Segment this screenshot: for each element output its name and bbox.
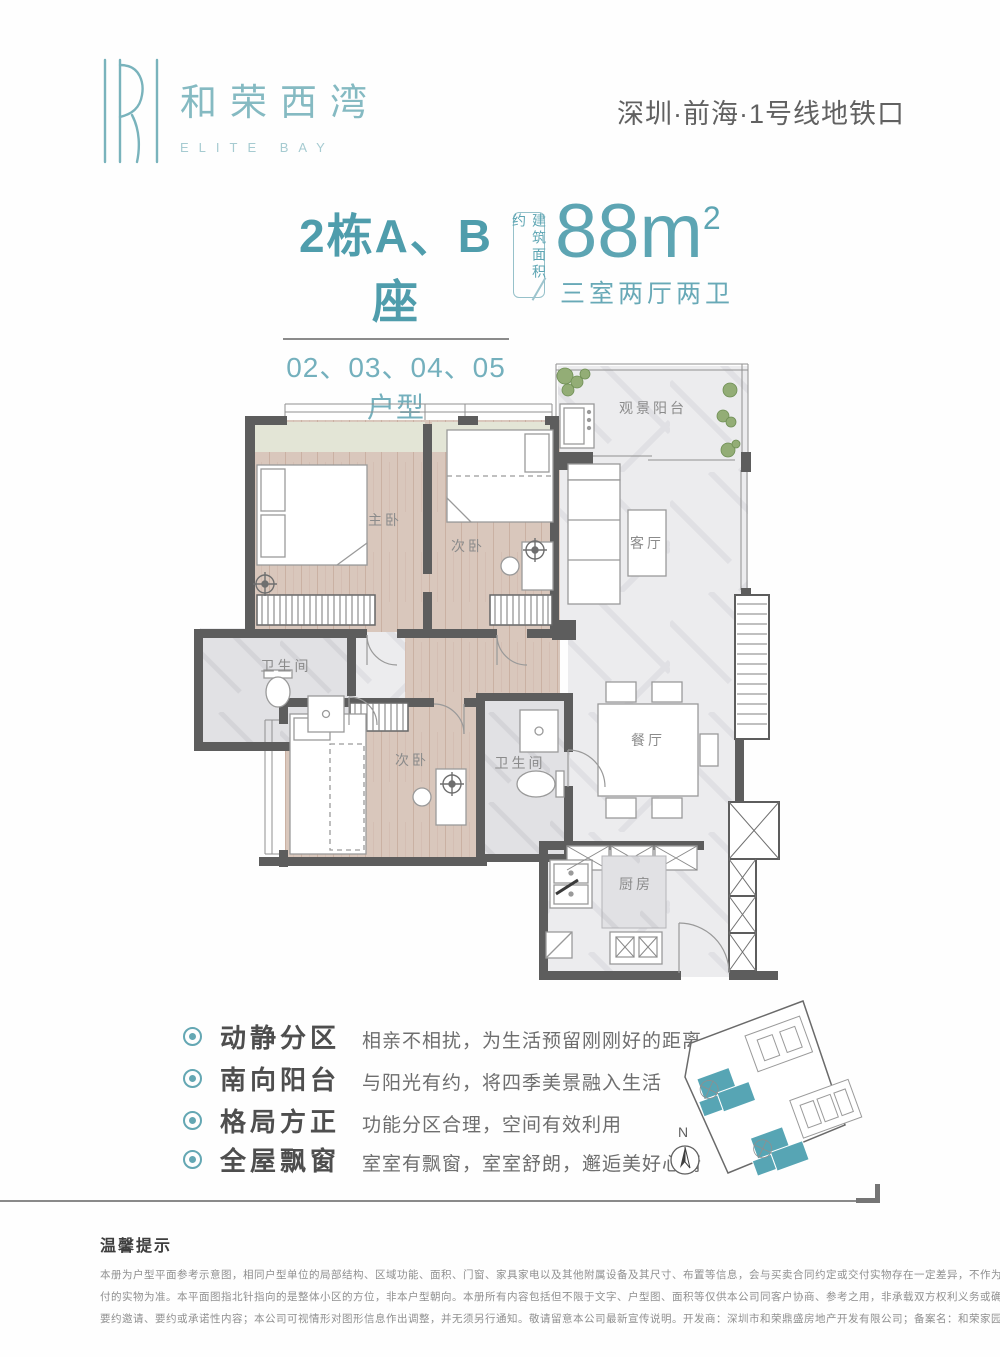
bullet-icon	[183, 1150, 202, 1169]
brand-name-block: 和荣西湾 ELITE BAY	[180, 72, 380, 155]
disclaimer-line: 付的实物为准。本平面图指北针指向的是整体小区的方位，非本户型朝向。本册所有内容包…	[100, 1286, 910, 1308]
room-label-second-bedroom: 次卧	[451, 536, 485, 556]
north-label: N	[678, 1124, 688, 1140]
feature-row-balcony: 南向阳台 与阳光有约，将四季美景融入生活	[183, 1060, 662, 1097]
area-value-block: 88m2	[555, 194, 721, 270]
feature-row-zoning: 动静分区 相亲不相扰，为生活预留刚刚好的距离	[183, 1018, 702, 1055]
bullet-icon	[183, 1069, 202, 1088]
section-divider	[0, 1200, 858, 1202]
disclaimer-line: 本册为户型平面参考示意图，相同户型单位的局部结构、区域功能、面积、门窗、家具家电…	[100, 1264, 910, 1286]
room-label-kitchen: 厨房	[619, 874, 653, 894]
feature-label: 动静分区	[220, 1018, 340, 1055]
feature-desc: 与阳光有约，将四季美景融入生活	[362, 1068, 662, 1095]
siteplan: N	[645, 998, 965, 1206]
feature-label: 南向阳台	[220, 1060, 340, 1097]
brand-logo-mark-icon	[98, 56, 164, 166]
room-label-third-bedroom: 次卧	[395, 750, 429, 770]
title-underline	[283, 338, 509, 340]
brochure-page: 和荣西湾 ELITE BAY 深圳·前海·1号线地铁口 2栋A、B座 02、03…	[0, 0, 1000, 1357]
feature-label: 格局方正	[220, 1102, 340, 1139]
room-label-master-bedroom: 主卧	[368, 510, 402, 530]
bullet-icon	[183, 1111, 202, 1130]
feature-row-baywindow: 全屋飘窗 室室有飘窗，室室舒朗，邂逅美好心情	[183, 1141, 702, 1178]
room-label-dining-room: 餐厅	[631, 730, 665, 750]
brand-name-cn: 和荣西湾	[180, 72, 380, 126]
room-label-bathroom-1: 卫生间	[261, 656, 312, 676]
divider-corner-v	[875, 1184, 880, 1203]
brand-name-en: ELITE BAY	[180, 140, 380, 155]
feature-desc: 功能分区合理，空间有效利用	[362, 1110, 622, 1137]
room-label-view-balcony: 观景阳台	[619, 398, 687, 418]
bullet-icon	[183, 1027, 202, 1046]
room-layout-text: 三室两厅两卫	[560, 274, 734, 310]
area-superscript: 2	[703, 200, 721, 236]
siteplan-drawing	[645, 998, 965, 1206]
location-tagline: 深圳·前海·1号线地铁口	[617, 92, 905, 131]
disclaimer-title: 温馨提示	[100, 1232, 910, 1256]
room-label-bathroom-2: 卫生间	[495, 753, 546, 773]
room-label-living-room: 客厅	[630, 533, 664, 553]
area-label: 建筑面积约	[509, 213, 549, 297]
floorplan-drawing	[190, 352, 890, 1017]
feature-label: 全屋飘窗	[220, 1141, 340, 1178]
floorplan: 主卧 次卧 观景阳台 客厅 卫生间 次卧 卫生间 餐厅 厨房	[190, 352, 890, 1017]
disclaimer: 温馨提示 本册为户型平面参考示意图，相同户型单位的局部结构、区域功能、面积、门窗…	[100, 1232, 910, 1330]
disclaimer-line: 要约邀请、要约或承诺性内容；本公司可视情形对图形信息作出调整，并无须另行通知。敬…	[100, 1308, 910, 1330]
area-number: 88m2	[555, 189, 721, 274]
feature-row-layout: 格局方正 功能分区合理，空间有效利用	[183, 1102, 622, 1139]
building-title: 2栋A、B座	[283, 200, 509, 332]
